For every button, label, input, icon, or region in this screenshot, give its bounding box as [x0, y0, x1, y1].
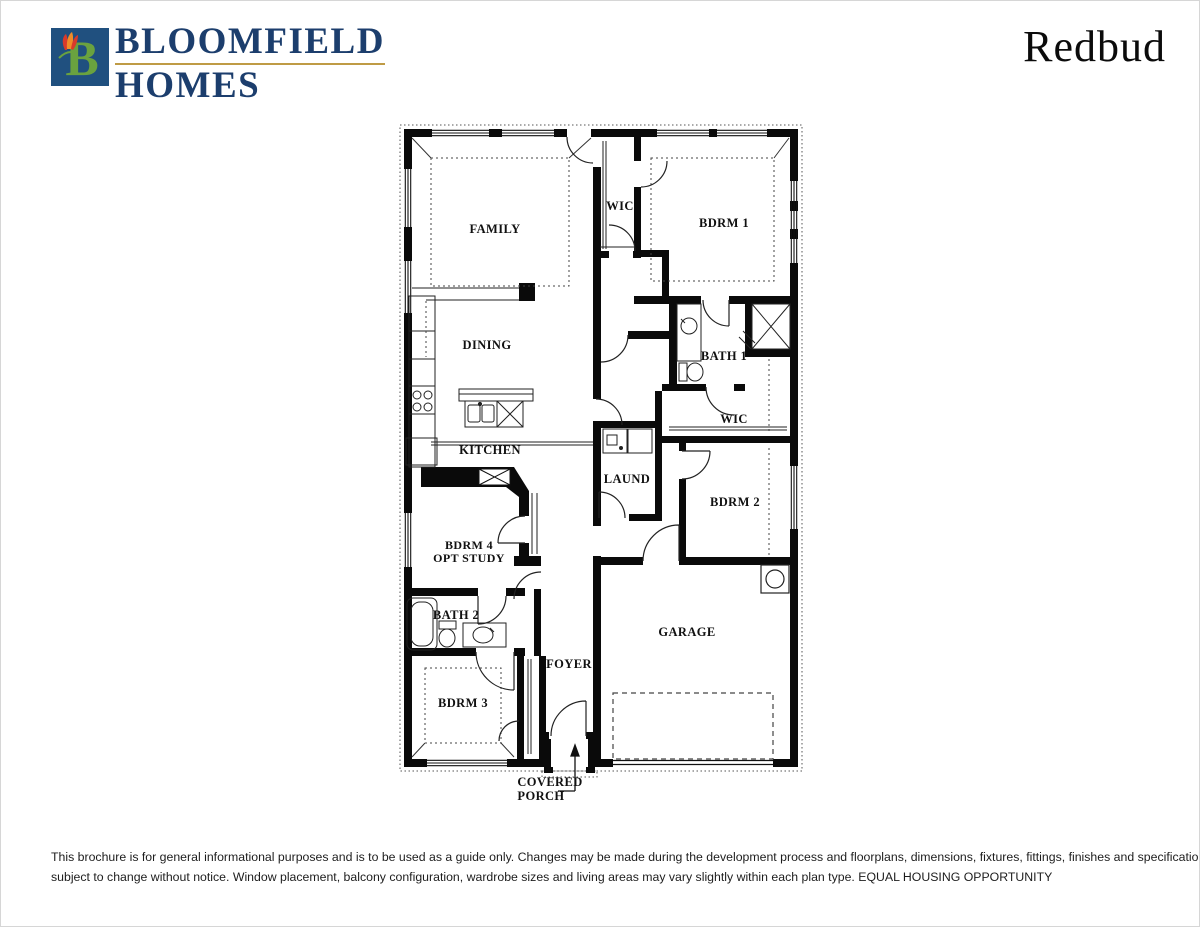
floor-plan: FAMILY WIC BDRM 1 DINING KITCHEN BATH 1 …: [1, 1, 1200, 927]
room-label-bdrm1: BDRM 1: [699, 216, 749, 230]
toilet-icon: [439, 621, 456, 629]
water-heater-icon: [761, 565, 789, 593]
room-label-dining: DINING: [463, 338, 512, 352]
garage-door: [613, 761, 773, 765]
room-label-bdrm4-line2: OPT STUDY: [433, 551, 505, 565]
room-label-bdrm2: BDRM 2: [710, 495, 760, 509]
brochure-page: B BLOOMFIELD HOMES Redbud: [0, 0, 1200, 927]
toilet-icon: [679, 363, 687, 381]
bath2-fixtures: [407, 598, 506, 650]
room-label-garage: GARAGE: [658, 625, 715, 639]
sink-icon: [681, 318, 697, 334]
sink-icon: [473, 627, 493, 643]
room-label-porch-line1: COVERED: [517, 775, 582, 789]
disclaimer: This brochure is for general information…: [51, 848, 1200, 887]
washer-dryer-icon: [603, 429, 652, 453]
room-label-bath2: BATH 2: [433, 608, 479, 622]
room-label-porch-line2: PORCH: [517, 789, 564, 803]
room-label-wic2: WIC: [720, 412, 748, 426]
disclaimer-line1: This brochure is for general information…: [51, 848, 1200, 868]
room-label-kitchen: KITCHEN: [459, 443, 521, 457]
room-label-family: FAMILY: [469, 222, 520, 236]
disclaimer-line2: subject to change without notice. Window…: [51, 868, 1200, 888]
garage-door-ceiling: [613, 693, 773, 759]
kitchen-island: [459, 389, 533, 427]
room-label-bdrm4-line1: BDRM 4: [445, 538, 493, 552]
room-label-wic1: WIC: [606, 199, 634, 213]
room-label-foyer: FOYER: [546, 657, 592, 671]
room-label-bdrm3: BDRM 3: [438, 696, 488, 710]
pantry-closet: [479, 469, 510, 485]
room-label-laundry: LAUND: [604, 472, 650, 486]
room-label-bath1: BATH 1: [701, 349, 747, 363]
bath1-fixtures: [677, 304, 703, 381]
